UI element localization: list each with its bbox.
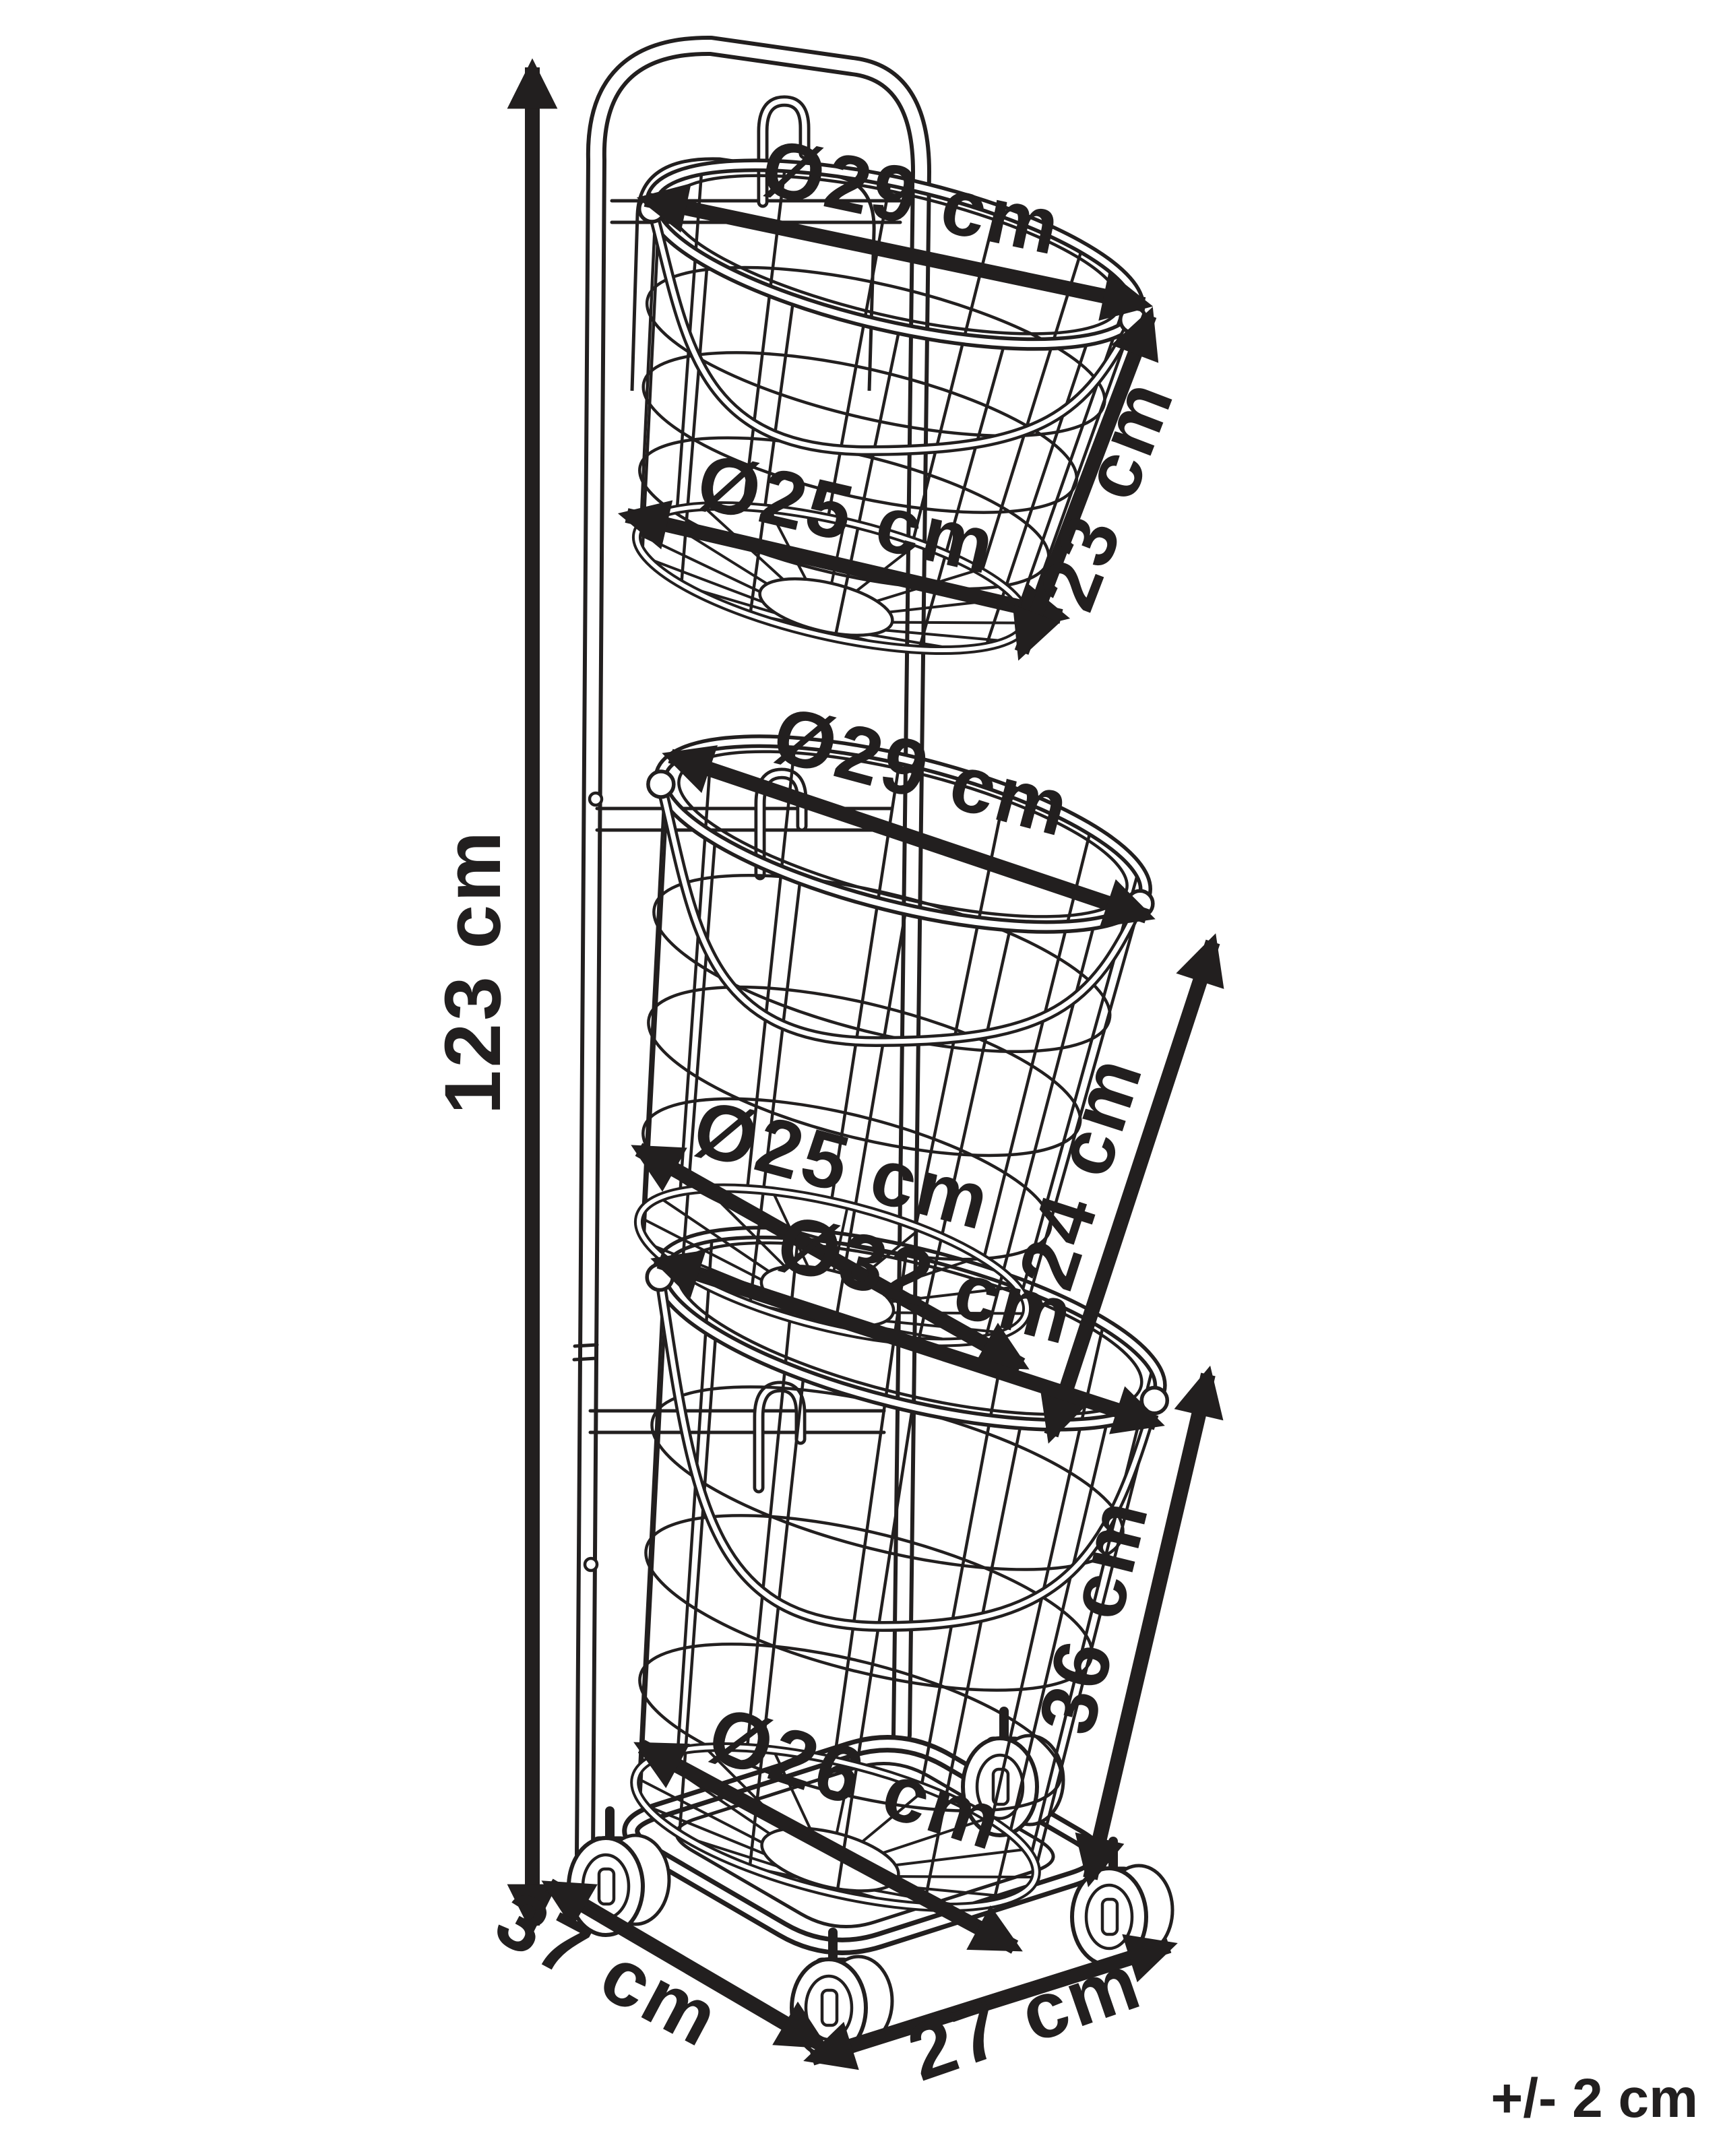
label-base-width: 27 cm [898, 1936, 1152, 2098]
label-basket-top-height: 23 cm [1023, 367, 1191, 621]
label-basket-bottom-bottom-diameter: Ø26 cm [698, 1690, 1014, 1868]
label-overall-height: 123 cm [429, 829, 517, 1114]
label-tolerance: +/- 2 cm [1491, 2068, 1698, 2129]
dimension-diagram: 123 cm Ø29 cm Ø25 cm 23 cm Ø29 cm Ø25 cm… [0, 0, 1725, 2156]
